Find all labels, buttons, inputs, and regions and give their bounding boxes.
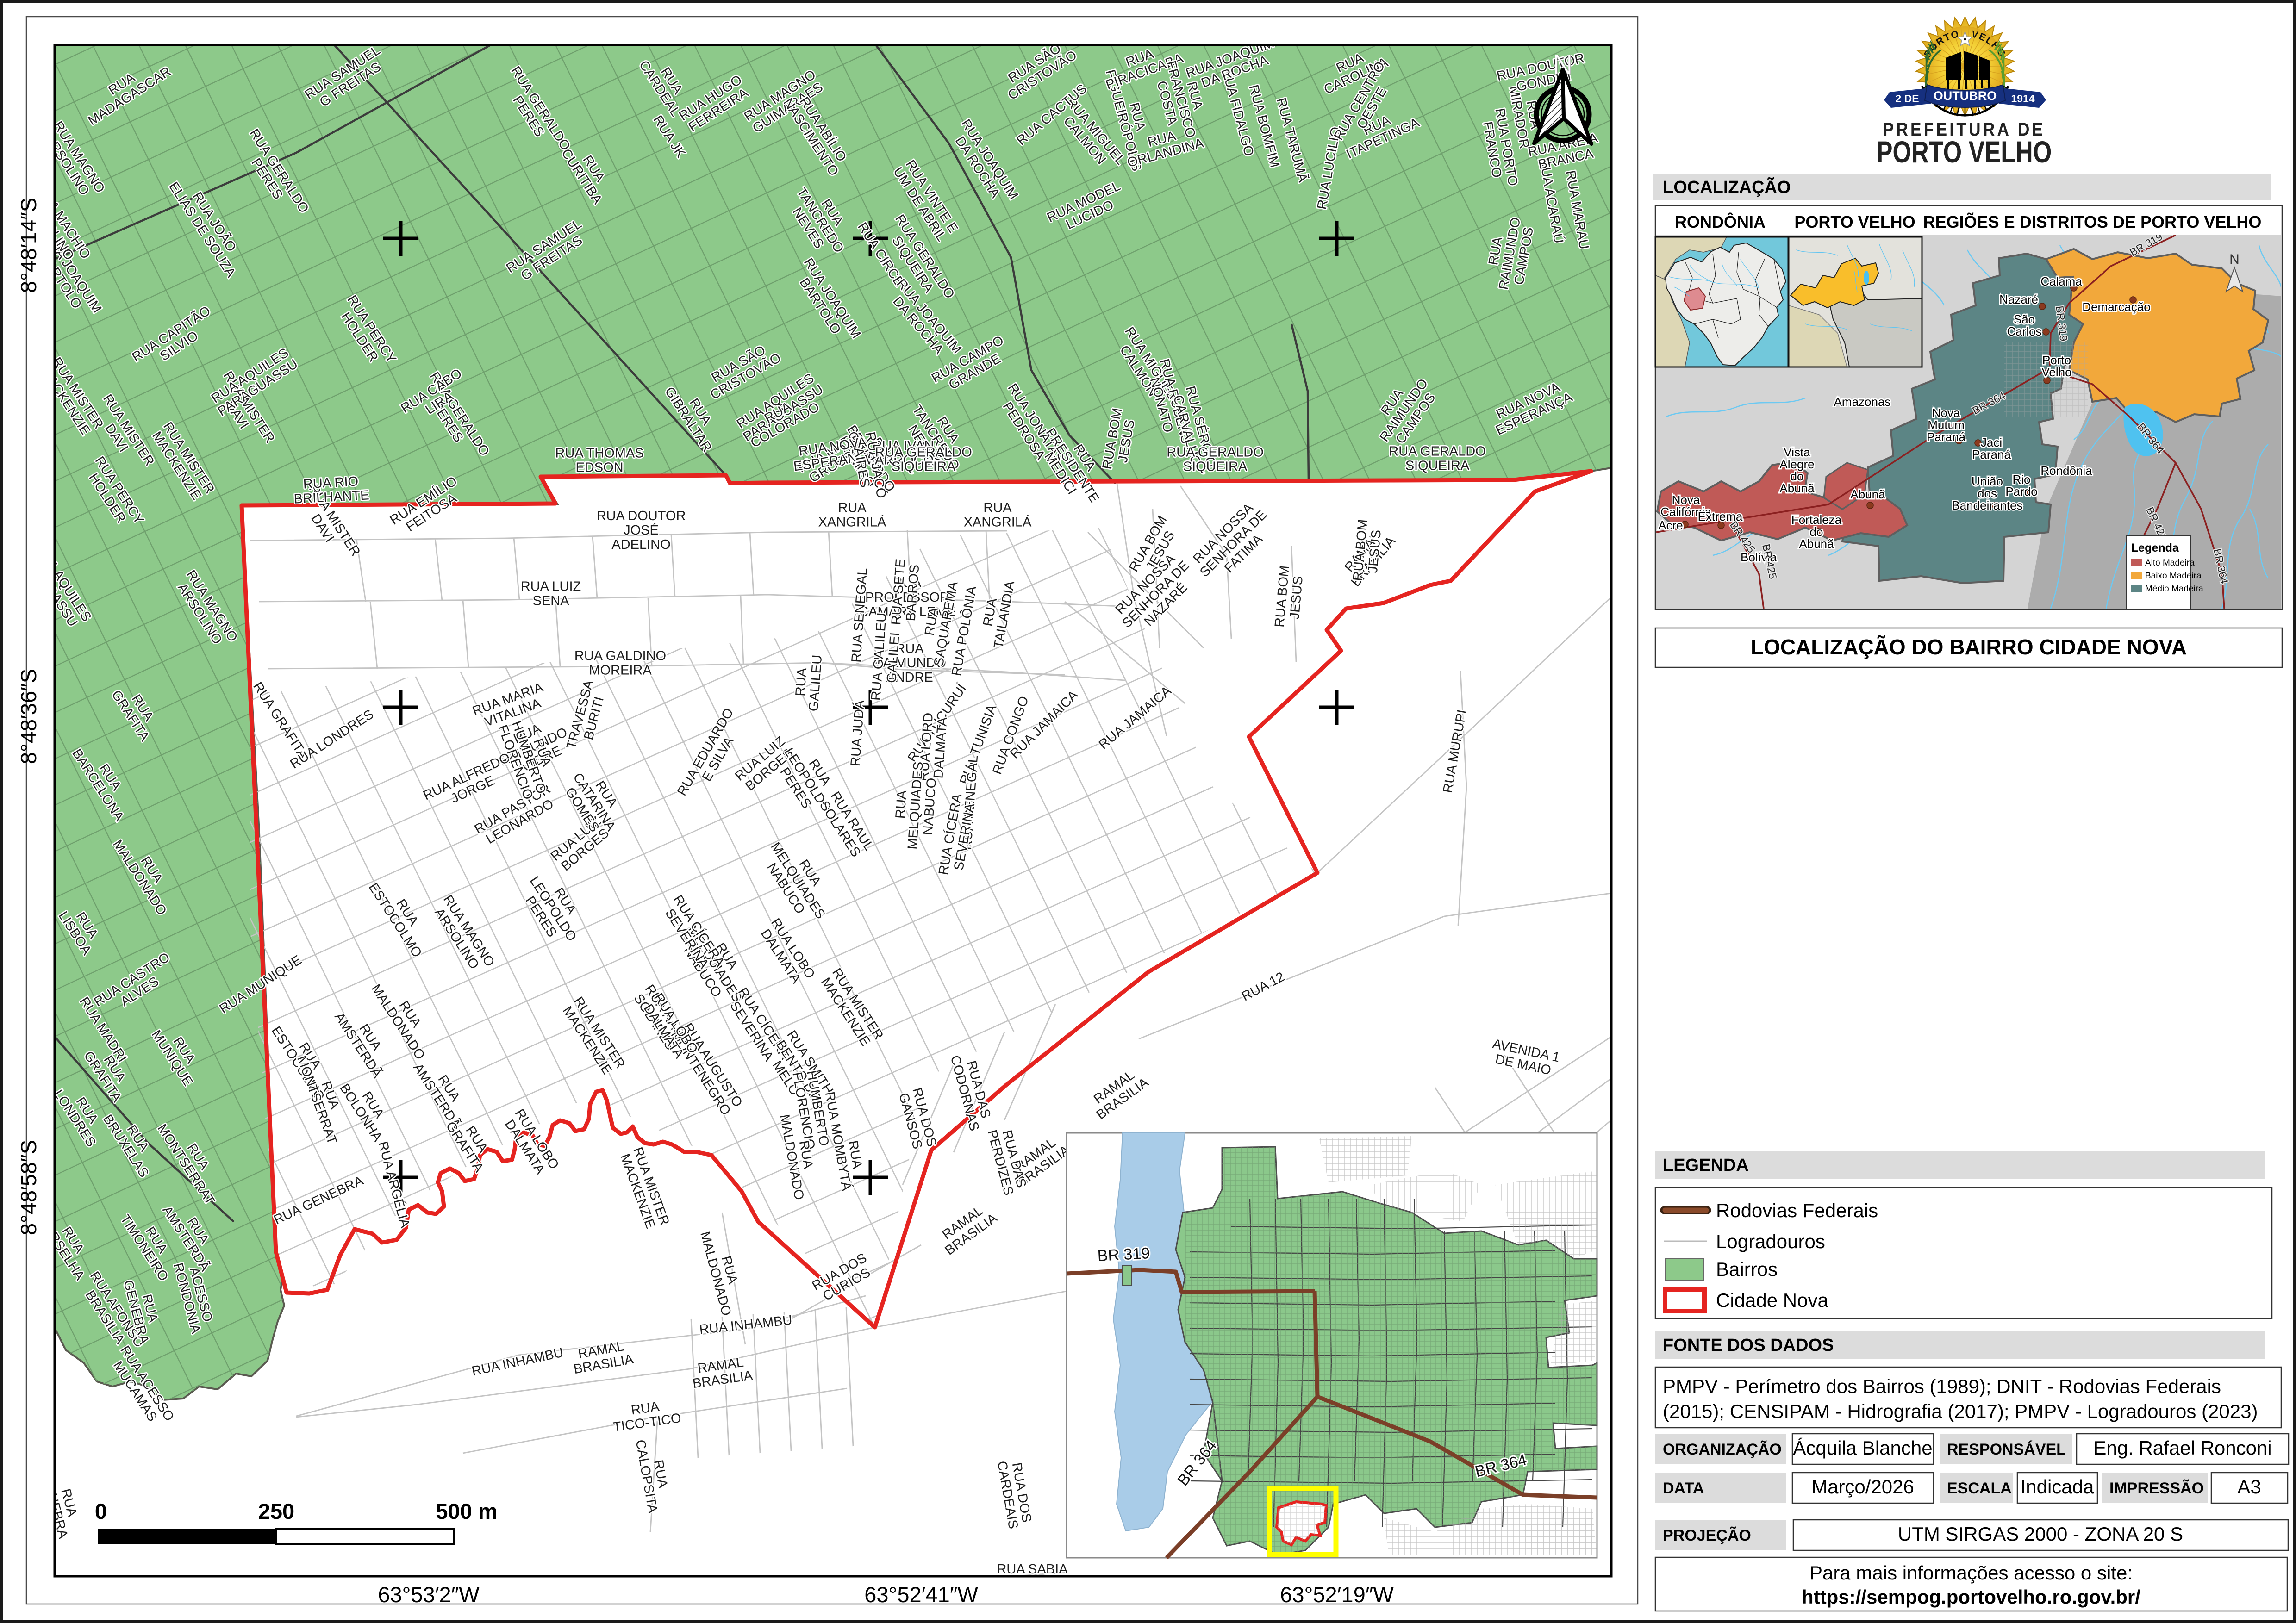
- svg-text:VistaAlegredoAbunã: VistaAlegredoAbunã: [1779, 445, 1815, 495]
- svg-text:Ácquila Blanche: Ácquila Blanche: [1793, 1437, 1932, 1459]
- svg-text:Logradouros: Logradouros: [1716, 1231, 1825, 1252]
- svg-text:Indicada: Indicada: [2021, 1476, 2094, 1498]
- svg-text:Nazaré: Nazaré: [1999, 292, 2038, 306]
- svg-text:BR 319: BR 319: [1097, 1244, 1150, 1265]
- svg-text:UTM SIRGAS 2000 - ZONA 20 S: UTM SIRGAS 2000 - ZONA 20 S: [1898, 1523, 2183, 1545]
- svg-text:Demarcação: Demarcação: [2082, 300, 2150, 314]
- svg-text:REGIÕES E DISTRITOS DE PORTO V: REGIÕES E DISTRITOS DE PORTO VELHO: [1923, 212, 2262, 231]
- svg-text:IMPRESSÃO: IMPRESSÃO: [2109, 1480, 2204, 1497]
- svg-text:https://sempog.portovelho.ro.g: https://sempog.portovelho.ro.gov.br/: [1802, 1586, 2140, 1608]
- svg-text:PortoVelho: PortoVelho: [2041, 353, 2071, 379]
- svg-text:8°48′58″S: 8°48′58″S: [16, 1140, 41, 1235]
- svg-text:Baixo Madeira: Baixo Madeira: [2145, 571, 2202, 581]
- svg-text:1914: 1914: [2011, 93, 2034, 105]
- svg-text:Rondônia: Rondônia: [2040, 464, 2092, 478]
- svg-text:Acre: Acre: [1658, 518, 1683, 532]
- svg-text:LOCALIZAÇÃO DO BAIRRO CIDADE N: LOCALIZAÇÃO DO BAIRRO CIDADE NOVA: [1751, 635, 2187, 659]
- svg-text:Bairros: Bairros: [1716, 1258, 1778, 1280]
- svg-text:63°52′41″W: 63°52′41″W: [864, 1582, 978, 1607]
- svg-text:LEGENDA: LEGENDA: [1663, 1156, 1749, 1175]
- svg-text:0: 0: [95, 1499, 107, 1524]
- svg-text:2 DE: 2 DE: [1895, 93, 1919, 105]
- svg-text:Legenda: Legenda: [2131, 541, 2179, 554]
- svg-text:Para mais informações acesso o: Para mais informações acesso o site:: [1809, 1562, 2133, 1584]
- svg-text:8°48′14″S: 8°48′14″S: [16, 198, 41, 293]
- svg-text:FONTE DOS DADOS: FONTE DOS DADOS: [1663, 1336, 1834, 1355]
- svg-text:Cidade Nova: Cidade Nova: [1716, 1289, 1828, 1311]
- svg-text:PORTO VELHO: PORTO VELHO: [1877, 135, 2052, 169]
- svg-text:Eng. Rafael Ronconi: Eng. Rafael Ronconi: [2093, 1437, 2271, 1459]
- svg-text:Amazonas: Amazonas: [1834, 395, 1891, 409]
- svg-text:RESPONSÁVEL: RESPONSÁVEL: [1947, 1441, 2066, 1458]
- svg-text:PORTO VELHO: PORTO VELHO: [1794, 212, 1915, 231]
- svg-text:Março/2026: Março/2026: [1811, 1476, 1914, 1498]
- svg-text:RONDÔNIA: RONDÔNIA: [1675, 212, 1766, 231]
- svg-text:PMPV - Perímetro dos Bairros (: PMPV - Perímetro dos Bairros (1989); DNI…: [1663, 1375, 2221, 1397]
- svg-text:ESCALA: ESCALA: [1947, 1480, 2012, 1497]
- svg-text:Abunã: Abunã: [1850, 487, 1885, 501]
- svg-text:NovaMutumParaná: NovaMutumParaná: [1927, 406, 1965, 444]
- svg-text:LOCALIZAÇÃO: LOCALIZAÇÃO: [1663, 177, 1791, 197]
- svg-text:DATA: DATA: [1663, 1480, 1704, 1497]
- svg-text:Rodovias Federais: Rodovias Federais: [1716, 1200, 1878, 1221]
- svg-text:ORGANIZAÇÃO: ORGANIZAÇÃO: [1663, 1441, 1782, 1458]
- svg-text:OUTUBRO: OUTUBRO: [1934, 89, 1997, 103]
- svg-text:RUA RIOBRILHANTE: RUA RIOBRILHANTE: [293, 473, 369, 506]
- svg-text:N: N: [2229, 252, 2240, 267]
- svg-text:(2015); CENSIPAM - Hidrografia: (2015); CENSIPAM - Hidrografia (2017); P…: [1663, 1400, 2258, 1422]
- svg-text:PROJEÇÃO: PROJEÇÃO: [1663, 1527, 1751, 1544]
- svg-text:500 m: 500 m: [436, 1499, 497, 1524]
- svg-text:Médio Madeira: Médio Madeira: [2145, 584, 2203, 594]
- svg-text:63°53′2″W: 63°53′2″W: [378, 1582, 480, 1607]
- svg-text:8°48′36″S: 8°48′36″S: [16, 669, 41, 764]
- svg-text:250: 250: [258, 1499, 294, 1524]
- svg-text:Calama: Calama: [2040, 274, 2082, 288]
- svg-text:63°52′19″W: 63°52′19″W: [1280, 1582, 1394, 1607]
- svg-text:Alto Madeira: Alto Madeira: [2145, 558, 2195, 568]
- svg-text:RUA SETEBARROS: RUA SETEBARROS: [889, 558, 923, 626]
- svg-text:A3: A3: [2237, 1476, 2261, 1498]
- svg-text:RUA SABIA: RUA SABIA: [997, 1562, 1068, 1577]
